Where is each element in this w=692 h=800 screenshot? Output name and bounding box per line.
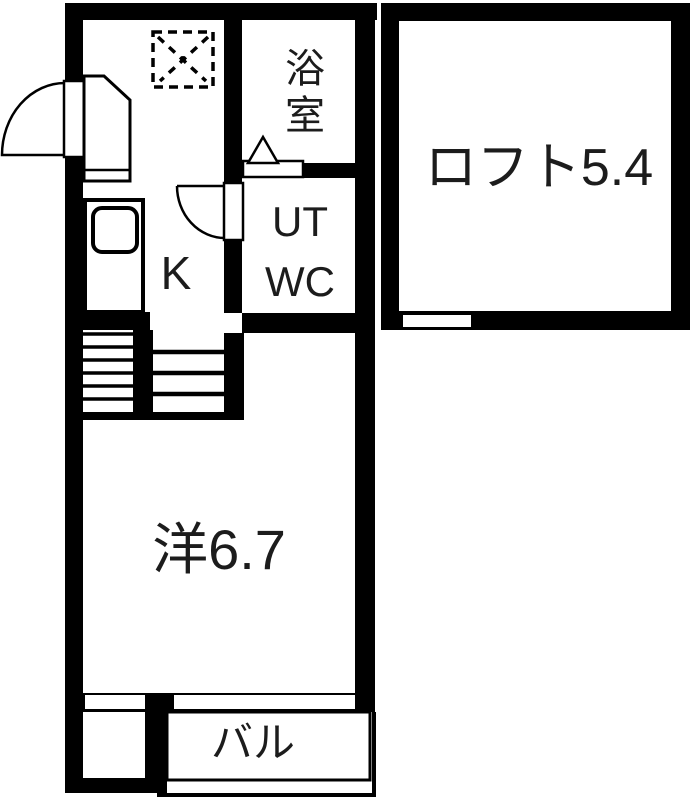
wall-left-lower — [65, 157, 83, 793]
wall-left-upper — [65, 3, 83, 82]
kitchen-sink — [93, 208, 137, 252]
bath-room-label: 浴室 — [279, 44, 323, 144]
wall-right — [355, 3, 375, 712]
loft-window — [402, 314, 472, 328]
floor-plan-drawing — [0, 0, 692, 800]
refrigerator-space-icon — [153, 32, 213, 87]
entrance-door-leaf — [64, 81, 84, 157]
kitchen-room-label: K — [146, 248, 206, 299]
entrance-door-swing — [2, 83, 65, 155]
wall-top — [65, 3, 377, 20]
loft-room-label: ロフト5.4 — [407, 140, 671, 197]
wall-below-kitchen — [83, 312, 150, 330]
utwc-door-leaf — [224, 183, 243, 240]
wall-stair-right — [224, 333, 244, 420]
floor-plan: ロフト5.4 浴室 UT WC K 洋6.7 バル — [0, 0, 692, 800]
utwc-door-swing — [177, 186, 225, 238]
wall-bottom-left — [65, 778, 167, 793]
wall-below-ut — [242, 313, 375, 333]
stair-divider — [133, 330, 153, 418]
shoe-cabinet — [84, 76, 130, 181]
balcony-room-label: バル — [183, 720, 323, 766]
main-room-label: 洋6.7 — [119, 519, 319, 581]
window-left — [85, 695, 145, 709]
bath-door-triangle — [248, 137, 278, 163]
wall-kitchen-bath-upper — [224, 20, 242, 183]
stairs-right-treads — [153, 352, 224, 394]
utwc-room-label-line1: UT — [250, 192, 350, 252]
utwc-room-label: UT WC — [250, 192, 350, 311]
wall-kitchen-ut-lower — [224, 240, 242, 313]
stair-bottom-band — [83, 412, 244, 420]
stairs-left-treads — [83, 334, 133, 399]
utwc-room-label-line2: WC — [250, 252, 350, 312]
window-balcony — [174, 695, 355, 709]
